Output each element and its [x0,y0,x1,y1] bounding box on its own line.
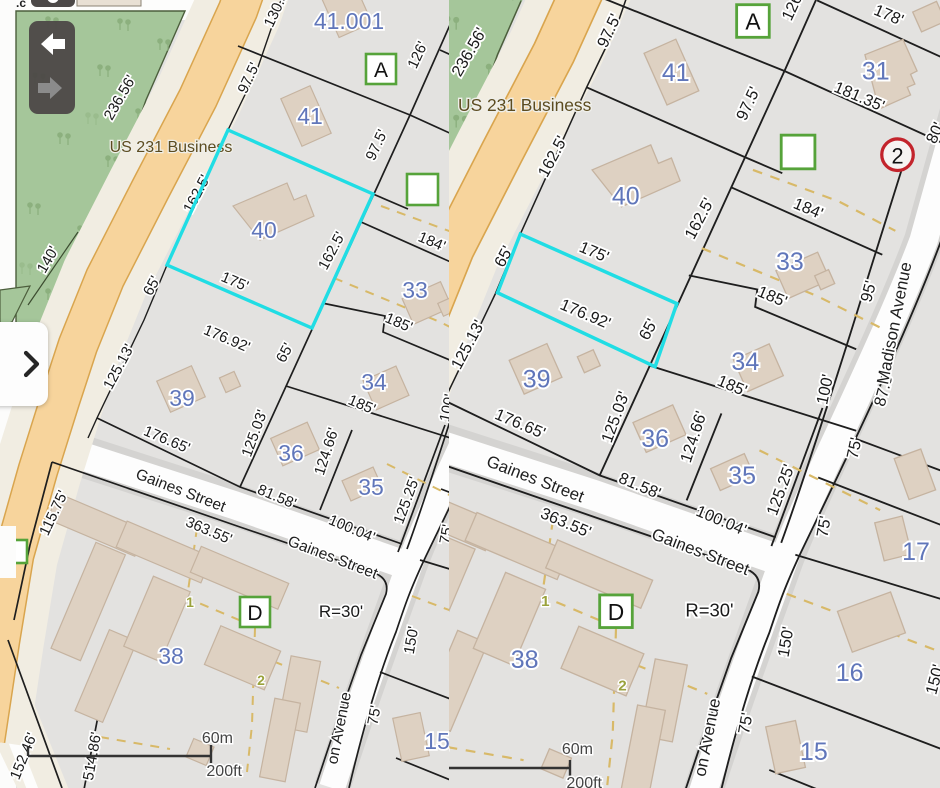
svg-text:60m: 60m [202,730,233,747]
svg-text:200ft: 200ft [206,763,242,780]
svg-text:60m: 60m [562,741,593,758]
svg-text:.c: .c [16,0,26,10]
svg-text:200ft: 200ft [566,775,602,788]
